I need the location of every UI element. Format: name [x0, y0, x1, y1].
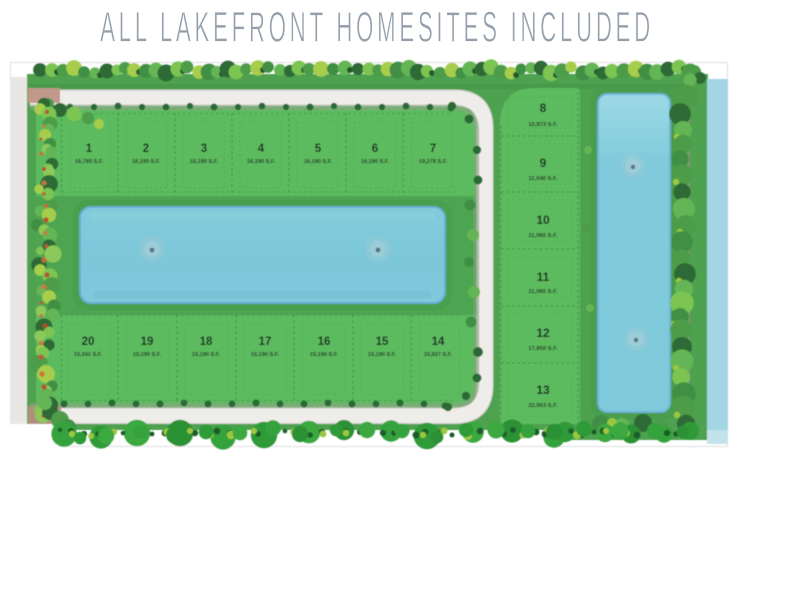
svg-text:20: 20: [82, 336, 95, 348]
svg-text:10,973 S.F.: 10,973 S.F.: [528, 122, 558, 128]
svg-text:ALL LAKEFRONT HOMESITES INCLUD: ALL LAKEFRONT HOMESITES INCLUDED: [100, 4, 654, 52]
svg-text:16,190 S.F.: 16,190 S.F.: [247, 159, 276, 165]
svg-text:16,190 S.F.: 16,190 S.F.: [304, 159, 333, 165]
svg-text:15,341 S.F.: 15,341 S.F.: [74, 352, 103, 358]
svg-text:16,190 S.F.: 16,190 S.F.: [190, 159, 219, 165]
svg-text:3: 3: [201, 143, 207, 155]
svg-text:6: 6: [372, 143, 378, 155]
svg-text:11,060 S.F.: 11,060 S.F.: [528, 233, 557, 239]
svg-text:11: 11: [537, 270, 550, 284]
svg-text:15,927 S.F.: 15,927 S.F.: [424, 352, 453, 358]
svg-text:1: 1: [86, 143, 93, 155]
svg-text:8: 8: [540, 101, 547, 115]
svg-text:12: 12: [536, 326, 550, 340]
svg-text:22,903 S.F.: 22,903 S.F.: [528, 403, 558, 409]
svg-text:9: 9: [540, 156, 547, 170]
svg-text:11,060 S.F.: 11,060 S.F.: [528, 289, 557, 295]
svg-text:16,190 S.F.: 16,190 S.F.: [361, 159, 390, 165]
svg-text:14: 14: [432, 336, 445, 348]
svg-text:17,850 S.F.: 17,850 S.F.: [528, 346, 558, 352]
svg-text:15,190 S.F.: 15,190 S.F.: [368, 352, 397, 358]
svg-text:18: 18: [200, 336, 213, 348]
svg-text:13: 13: [536, 383, 550, 397]
svg-text:19: 19: [141, 336, 154, 348]
svg-text:16: 16: [318, 336, 331, 348]
svg-text:19,278 S.F.: 19,278 S.F.: [419, 159, 448, 165]
svg-text:15: 15: [376, 336, 389, 348]
svg-text:15,190 S.F.: 15,190 S.F.: [133, 352, 162, 358]
svg-text:5: 5: [315, 143, 322, 155]
svg-text:11,040 S.F.: 11,040 S.F.: [528, 176, 557, 182]
svg-text:2: 2: [143, 143, 149, 155]
svg-text:10: 10: [536, 213, 550, 227]
svg-text:7: 7: [430, 143, 436, 155]
svg-text:4: 4: [258, 143, 265, 155]
svg-text:16,789 S.F.: 16,789 S.F.: [75, 159, 104, 165]
svg-text:17: 17: [259, 336, 272, 348]
svg-text:15,190 S.F.: 15,190 S.F.: [192, 352, 221, 358]
svg-text:16,190 S.F.: 16,190 S.F.: [132, 159, 161, 165]
svg-text:15,190 S.F.: 15,190 S.F.: [310, 352, 339, 358]
svg-text:15,190 S.F.: 15,190 S.F.: [251, 352, 280, 358]
